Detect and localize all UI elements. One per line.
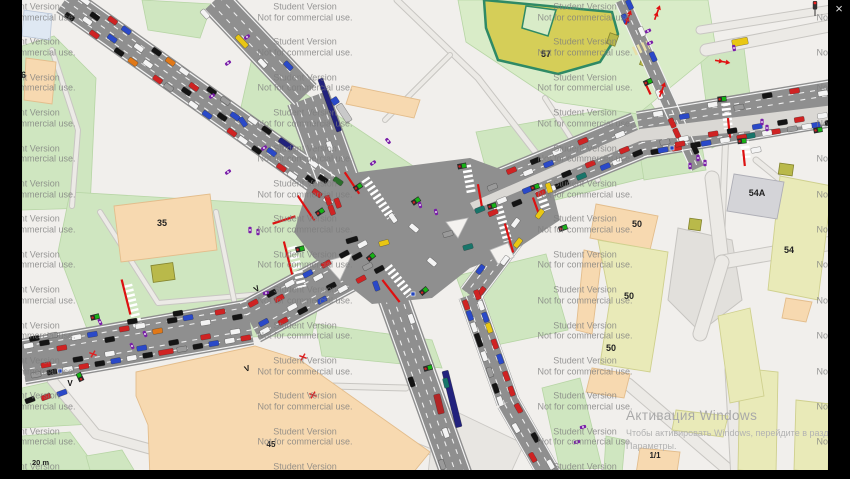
signal-head: [737, 138, 747, 144]
bicycle-sign: [670, 146, 674, 150]
simulation-network-view[interactable]: VVV355750505054A541/14536: [0, 0, 850, 479]
cyclist: [688, 163, 691, 169]
signal-head: [717, 96, 727, 102]
building-label: 50: [632, 219, 642, 229]
letterbox-left: [0, 0, 22, 479]
map-content: VVV355750505054A541/14536: [16, 0, 850, 479]
cyclist: [765, 125, 768, 131]
building-label: 54A: [749, 188, 766, 198]
building: [22, 10, 52, 40]
building-label: 54: [784, 245, 794, 255]
letterbox-right: [828, 0, 850, 479]
kiosk-building: [688, 218, 701, 231]
building: [782, 298, 812, 322]
building-label: 50: [606, 343, 616, 353]
building-label: 57: [541, 49, 551, 59]
cyclist: [248, 227, 251, 233]
building: [24, 58, 56, 104]
network-canvas: VVV355750505054A541/14536: [0, 0, 850, 479]
bicycle-sign: [58, 369, 62, 373]
building: [794, 400, 830, 473]
close-icon[interactable]: ×: [832, 2, 846, 16]
building: [114, 194, 217, 262]
cyclist: [703, 160, 706, 166]
kiosk-building: [778, 163, 793, 176]
cyclist: [696, 155, 699, 161]
green-area: [604, 436, 625, 474]
direction-marker: V: [67, 379, 73, 388]
kiosk-building: [151, 263, 175, 283]
letterbox-bottom: [0, 470, 850, 479]
minor-street: [332, 386, 406, 388]
cyclist: [760, 119, 763, 125]
building-label: 50: [624, 291, 634, 301]
building-label: 45: [267, 440, 276, 449]
application-window: VVV355750505054A541/14536 Student Versio…: [0, 0, 850, 479]
cyclist: [256, 229, 259, 235]
building-label: 1/1: [649, 451, 661, 460]
bicycle-sign: [411, 292, 415, 296]
building-label: 35: [157, 218, 167, 228]
